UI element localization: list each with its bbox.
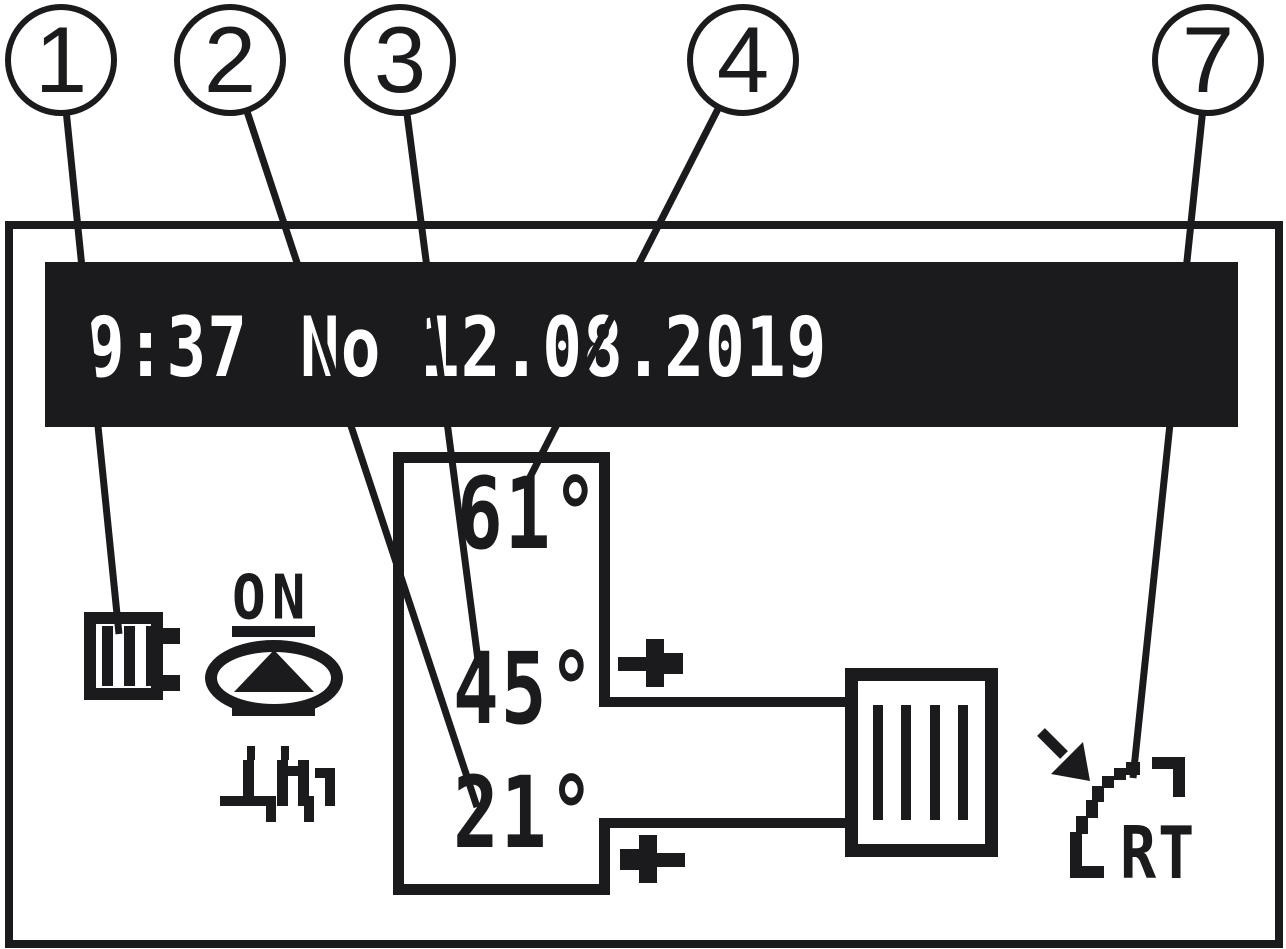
statusbar: 9:37 No 12.08.2019 xyxy=(45,262,1238,427)
statusbar-day: No xyxy=(300,307,381,390)
boiler-icon-bar xyxy=(146,626,157,686)
room-thermostat-label: RT xyxy=(1120,818,1196,890)
callout-1: 1 xyxy=(5,4,117,116)
temperature-bottom: 21° xyxy=(453,764,596,863)
pump-icon-bottom-bar xyxy=(232,705,315,716)
radiator-fin xyxy=(958,705,968,820)
boiler-icon-bar xyxy=(102,626,113,686)
temperature-top: 61° xyxy=(457,465,600,564)
callout-2: 2 xyxy=(174,4,286,116)
supply-pipe xyxy=(599,697,846,707)
panel-pipe-opening xyxy=(597,707,612,818)
boiler-icon-stub xyxy=(163,675,180,691)
radiator-fin xyxy=(901,705,911,820)
callout-3: 3 xyxy=(344,4,456,116)
radiator-fin xyxy=(930,705,940,820)
boiler-icon-bar xyxy=(124,626,135,686)
pump-on-label: ON xyxy=(232,568,311,630)
boiler-icon-stub xyxy=(163,628,180,644)
radiator-icon xyxy=(845,668,998,857)
callout-4: 4 xyxy=(687,4,799,116)
pump-icon-top-bar xyxy=(232,626,315,637)
return-pipe xyxy=(599,818,846,828)
figure-canvas: 9:37 No 12.08.2019 ON 61° 45° 21° xyxy=(0,0,1286,949)
statusbar-time: 9:37 xyxy=(85,307,248,390)
radiator-fin xyxy=(873,705,883,820)
statusbar-date: 12.08.2019 xyxy=(420,307,827,390)
callout-7: 7 xyxy=(1152,4,1264,116)
pump-icon-rotor xyxy=(234,650,314,692)
temperature-middle: 45° xyxy=(453,640,596,739)
